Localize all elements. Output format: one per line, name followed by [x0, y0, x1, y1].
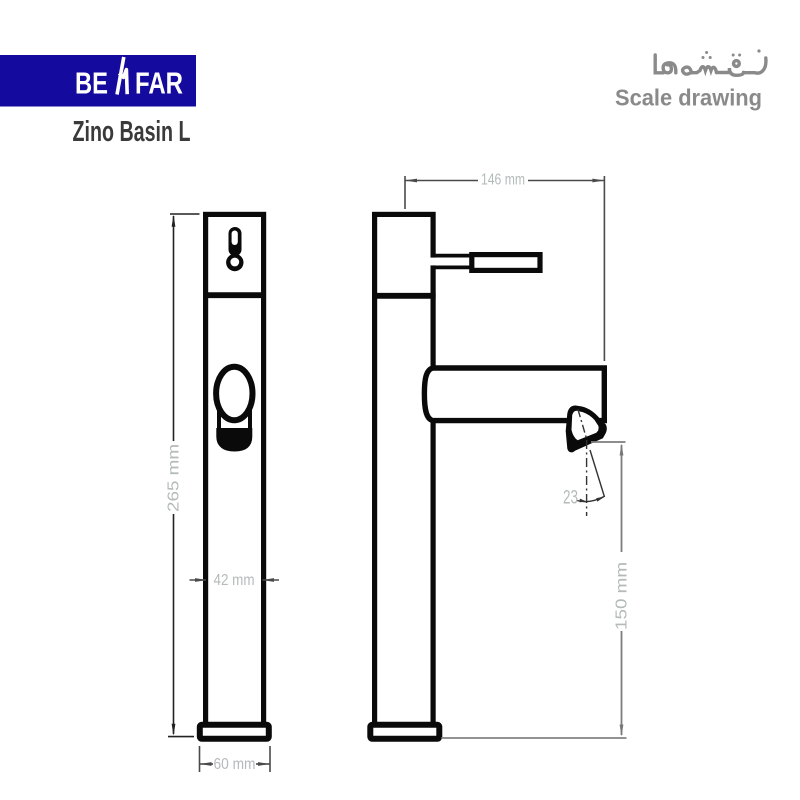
svg-text:146 mm: 146 mm: [481, 172, 525, 189]
svg-text:Scale drawing: Scale drawing: [615, 85, 762, 111]
svg-text:FAR: FAR: [135, 66, 183, 101]
svg-text:42 mm: 42 mm: [214, 572, 255, 589]
svg-text:Zino Basin L: Zino Basin L: [73, 116, 191, 148]
svg-text:60 mm: 60 mm: [214, 756, 256, 773]
svg-text:23: 23: [563, 488, 578, 509]
svg-text:BE: BE: [75, 66, 108, 101]
svg-text:265 mm: 265 mm: [166, 444, 183, 512]
svg-text:150 mm: 150 mm: [614, 562, 631, 630]
